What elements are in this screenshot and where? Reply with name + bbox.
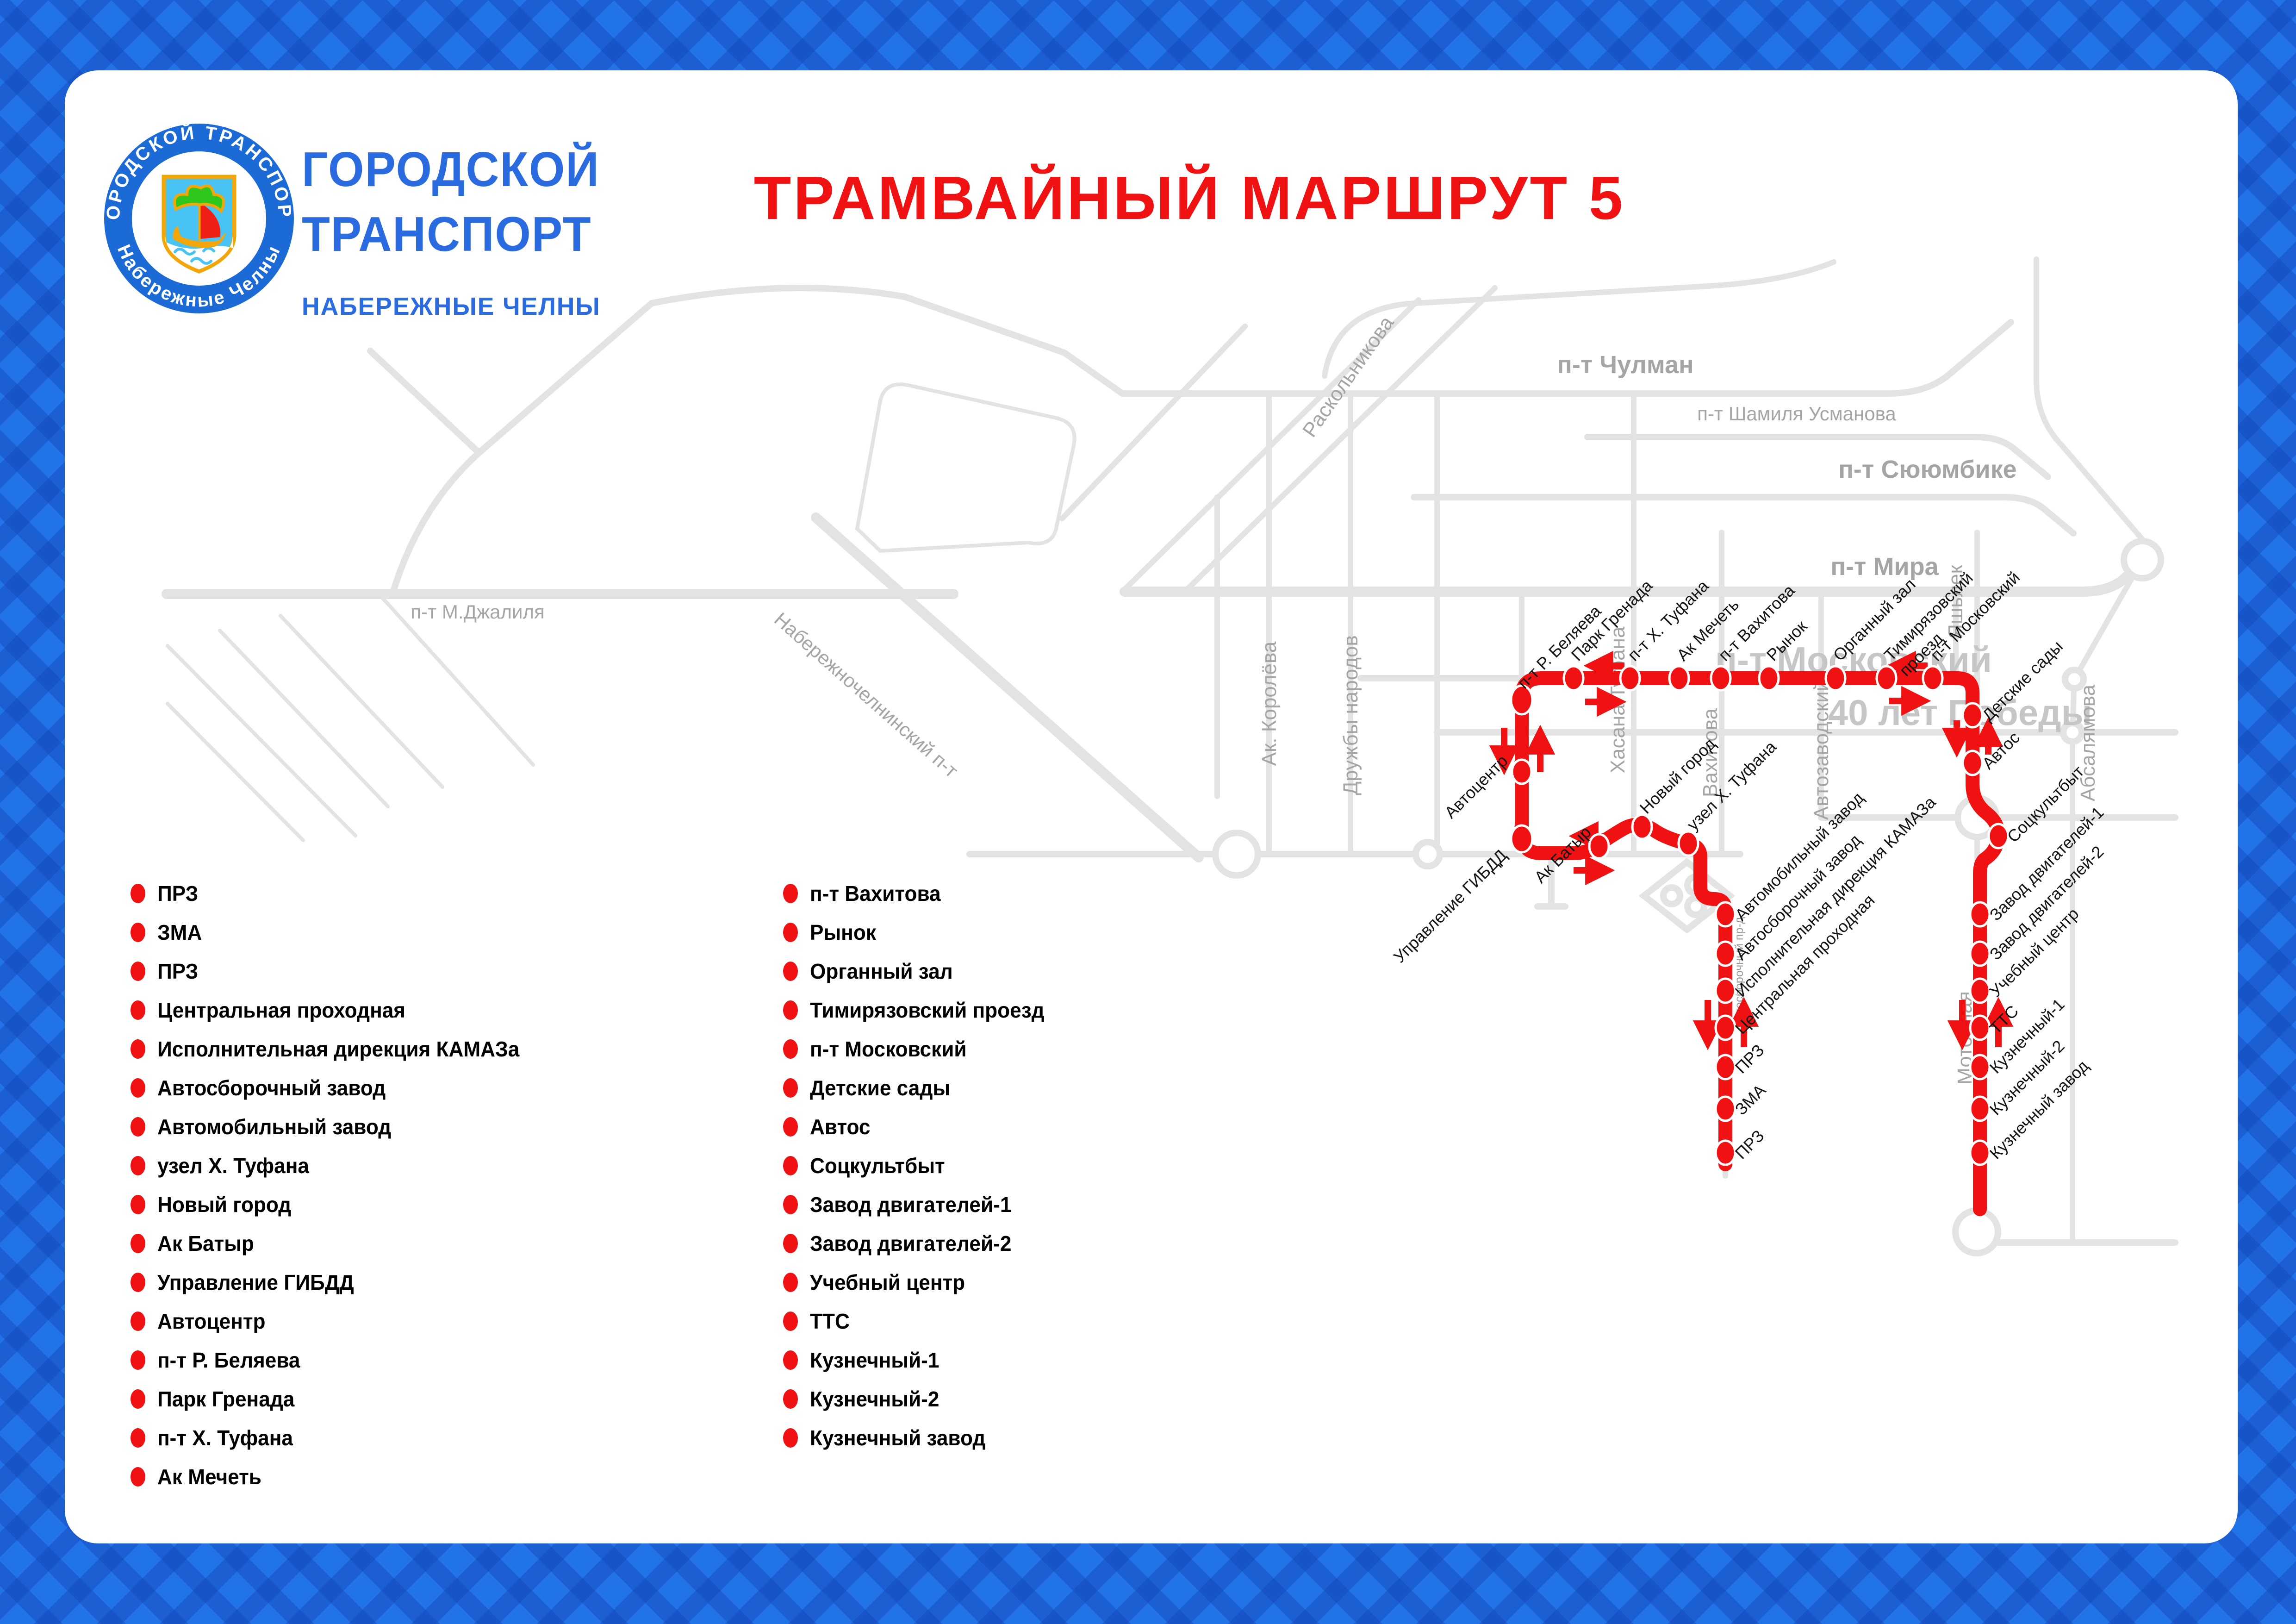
stop-marker [1759, 666, 1779, 690]
stop-label: ЗМА [1731, 1081, 1770, 1119]
stop-bullet-icon [131, 1078, 145, 1098]
stop-label: Автоцентр [1441, 751, 1512, 822]
stop-name: Органный зал [810, 959, 953, 984]
stop-name: Ак Мечеть [157, 1464, 261, 1489]
list-item: узел Х. Туфана [131, 1146, 535, 1185]
stop-bullet-icon [131, 1312, 145, 1331]
stop-bullet-icon [783, 884, 798, 903]
list-item: ЗМА [131, 913, 535, 952]
stop-name: Автомобильный завод [157, 1114, 391, 1139]
street-label: п-т Чулман [1557, 351, 1694, 379]
stop-name: Учебный центр [810, 1270, 965, 1295]
stop-marker [1970, 1141, 1990, 1165]
stop-marker [1877, 666, 1896, 690]
stop-bullet-icon [783, 1039, 798, 1059]
stop-name: Автосборочный завод [157, 1075, 386, 1100]
stop-bullet-icon [131, 1234, 145, 1253]
stop-marker [1716, 942, 1735, 966]
stop-marker [1923, 666, 1942, 690]
stop-marker [1716, 979, 1735, 1003]
list-item: Соцкультбыт [783, 1146, 1054, 1185]
stop-bullet-icon [131, 1389, 145, 1409]
list-item: Автосборочный завод [131, 1068, 535, 1107]
stop-label: ПРЗ [1731, 1126, 1768, 1163]
list-item: п-т Х. Туфана [131, 1418, 535, 1457]
stop-bullet-icon [783, 1389, 798, 1409]
stop-bullet-icon [131, 962, 145, 981]
stop-marker [1970, 979, 1990, 1003]
list-item: Автос [783, 1107, 1054, 1146]
stop-marker [1620, 666, 1640, 690]
brand-line-2: ТРАНСПОРТ [302, 202, 600, 267]
stop-name: п-т Р. Беляева [157, 1348, 300, 1373]
stop-name: Кузнечный завод [810, 1425, 985, 1450]
list-item: Кузнечный завод [783, 1418, 1054, 1457]
list-item: Автомобильный завод [131, 1107, 535, 1146]
list-item: Новый город [131, 1185, 535, 1224]
stop-name: Автос [810, 1114, 870, 1139]
stop-name: ТТС [810, 1309, 850, 1334]
street-label: п-т М.Джалиля [411, 601, 544, 623]
stop-name: Тимирязовский проезд [810, 998, 1045, 1023]
stop-name: Соцкультбыт [810, 1153, 945, 1178]
stop-marker [1970, 942, 1990, 966]
stop-marker [1669, 666, 1689, 690]
list-item: Завод двигателей-2 [783, 1224, 1054, 1263]
stop-bullet-icon [783, 1312, 798, 1331]
roundabout [1416, 842, 1440, 866]
stop-marker [1963, 751, 1982, 775]
stop-name: Новый город [157, 1192, 291, 1217]
list-item: Детские сады [783, 1068, 1054, 1107]
stop-name: Детские сады [810, 1075, 950, 1100]
stop-bullet-icon [131, 884, 145, 903]
stop-bullet-icon [131, 1039, 145, 1059]
stop-label: Управление ГИБДД [1390, 846, 1511, 967]
tram-route-poster: { "title": "ТРАМВАЙНЫЙ МАРШРУТ 5", "bran… [0, 0, 2296, 1624]
list-item: п-т Вахитова [783, 874, 1054, 913]
stop-bullet-icon [783, 1350, 798, 1370]
stop-marker [1716, 1055, 1735, 1079]
street-labels: Раскольникова п-т Чулман п-т Шамиля Усма… [411, 312, 2099, 1085]
stop-name: Ак Батыр [157, 1231, 254, 1256]
street-label: п-т Мира [1830, 553, 1939, 581]
list-item: Учебный центр [783, 1263, 1054, 1302]
list-item: п-т Р. Беляева [131, 1341, 535, 1380]
stop-bullet-icon [783, 962, 798, 981]
stop-name: ЗМА [157, 920, 202, 945]
stop-name: Исполнительная дирекция КАМАЗа [157, 1037, 519, 1062]
list-item: Завод двигателей-1 [783, 1185, 1054, 1224]
stop-marker [1511, 825, 1532, 852]
stop-name: ПРЗ [157, 881, 198, 906]
stop-bullet-icon [131, 1350, 145, 1370]
list-item: п-т Московский [783, 1030, 1054, 1068]
stop-marker [1716, 902, 1735, 926]
stop-name: Кузнечный-1 [810, 1348, 939, 1373]
stop-name: п-т Московский [810, 1037, 967, 1062]
list-item: Тимирязовский проезд [783, 991, 1054, 1030]
list-item: Ак Мечеть [131, 1457, 535, 1496]
stop-bullet-icon [131, 1117, 145, 1137]
stop-name: ПРЗ [157, 959, 198, 984]
stop-bullet-icon [783, 1156, 798, 1175]
stop-name: Парк Гренада [157, 1387, 294, 1412]
stop-marker [1716, 1016, 1735, 1040]
list-item: Кузнечный-2 [783, 1380, 1054, 1418]
list-item: Парк Гренада [131, 1380, 535, 1418]
list-item: Исполнительная дирекция КАМАЗа [131, 1030, 535, 1068]
stop-marker [1679, 831, 1698, 856]
stop-name: Центральная проходная [157, 998, 405, 1023]
stop-marker [1564, 666, 1583, 690]
stop-bullet-icon [783, 1000, 798, 1020]
list-item: Управление ГИБДД [131, 1263, 535, 1302]
roundabout [2124, 541, 2161, 578]
stop-name: Автоцентр [157, 1309, 265, 1334]
stop-bullet-icon [131, 1195, 145, 1214]
stop-bullet-icon [783, 1195, 798, 1214]
stop-name: узел Х. Туфана [157, 1153, 309, 1178]
stop-marker [1989, 824, 2008, 848]
stop-bullet-icon [131, 1428, 145, 1448]
stop-bullet-icon [783, 1273, 798, 1292]
list-item: ТТС [783, 1302, 1054, 1341]
coat-of-arms [164, 177, 234, 271]
stop-bullet-icon [783, 1117, 798, 1137]
list-item: Автоцентр [131, 1302, 535, 1341]
stop-bullet-icon [131, 1273, 145, 1292]
list-item: Центральная проходная [131, 991, 535, 1030]
list-item: ПРЗ [131, 874, 535, 913]
page-title: ТРАМВАЙНЫЙ МАРШРУТ 5 [662, 163, 1717, 233]
list-item: Рынок [783, 913, 1054, 952]
street-label: п-т Шамиля Усманова [1697, 403, 1896, 425]
stop-marker [1512, 760, 1531, 784]
stop-name: Управление ГИБДД [157, 1270, 354, 1295]
brand-wordmark: ГОРОДСКОЙ ТРАНСПОРТ НАБЕРЕЖНЫЕ ЧЕЛНЫ [302, 137, 619, 339]
list-item: Органный зал [783, 952, 1054, 991]
stop-name: п-т Вахитова [810, 881, 941, 906]
stop-list-column-1: ПРЗ ЗМА ПРЗ Центральная проходная Исполн… [131, 874, 535, 1496]
stop-bullet-icon [131, 923, 145, 942]
stop-bullet-icon [783, 923, 798, 942]
stop-name: Рынок [810, 920, 876, 945]
stop-marker [1711, 666, 1730, 690]
stop-name: Кузнечный-2 [810, 1387, 939, 1412]
stop-marker [1716, 1097, 1735, 1121]
stop-marker [1826, 666, 1845, 690]
roundabout [1955, 1211, 1998, 1253]
stop-bullet-icon [131, 1156, 145, 1175]
stop-marker [1716, 1141, 1735, 1165]
roundabout [1215, 833, 1258, 875]
list-item: ПРЗ [131, 952, 535, 991]
stop-name: п-т Х. Туфана [157, 1425, 293, 1450]
stop-bullet-icon [131, 1467, 145, 1487]
stop-name: Завод двигателей-1 [810, 1192, 1011, 1217]
street-label: Ак. Королёва [1258, 641, 1281, 766]
stop-marker [1963, 703, 1982, 727]
stop-bullet-icon [783, 1428, 798, 1448]
stop-marker [1970, 902, 1990, 926]
list-item: Кузнечный-1 [783, 1341, 1054, 1380]
stop-marker [1970, 1055, 1990, 1079]
brand-line-3: НАБЕРЕЖНЫЕ ЧЕЛНЫ [302, 274, 616, 339]
stop-label: ПРЗ [1731, 1041, 1768, 1077]
list-item: Ак Батыр [131, 1224, 535, 1263]
stop-bullet-icon [783, 1234, 798, 1253]
street-label: п-т Сююмбике [1838, 456, 2016, 483]
stop-name: Завод двигателей-2 [810, 1231, 1011, 1256]
stop-bullet-icon [783, 1078, 798, 1098]
street-label: Дружбы народов [1339, 635, 1362, 795]
stop-list-column-2: п-т Вахитова Рынок Органный зал Тимирязо… [783, 874, 1054, 1457]
stop-marker [1632, 815, 1652, 839]
stop-bullet-icon [131, 1000, 145, 1020]
brand-line-1: ГОРОДСКОЙ [302, 137, 600, 202]
street-label: Абсалямова [2077, 684, 2099, 801]
street-label: Набережночелнинский п-т [770, 608, 962, 782]
stop-marker [1970, 1016, 1990, 1040]
stop-marker [1970, 1097, 1990, 1121]
